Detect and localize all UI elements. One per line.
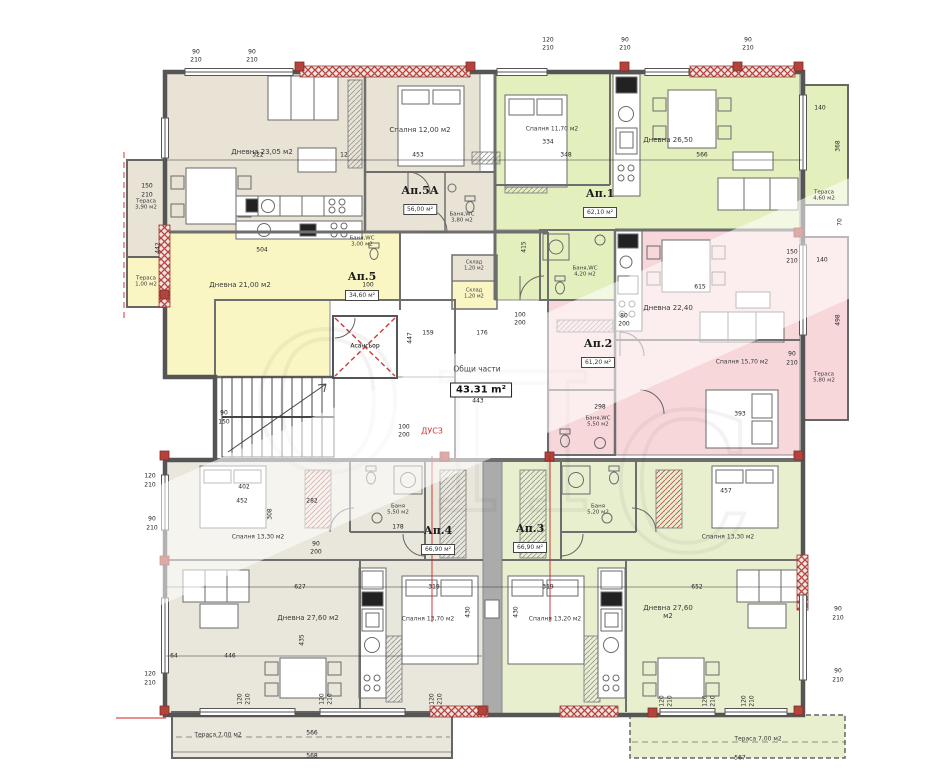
plan-drawing: О П С (0, 0, 948, 783)
floor-plan: О П С Общи части 43.31 m² Дневна 23,05 м… (0, 0, 948, 783)
svg-text:С: С (610, 374, 755, 595)
svg-text:П: П (430, 334, 596, 555)
svg-text:О: О (250, 294, 406, 515)
